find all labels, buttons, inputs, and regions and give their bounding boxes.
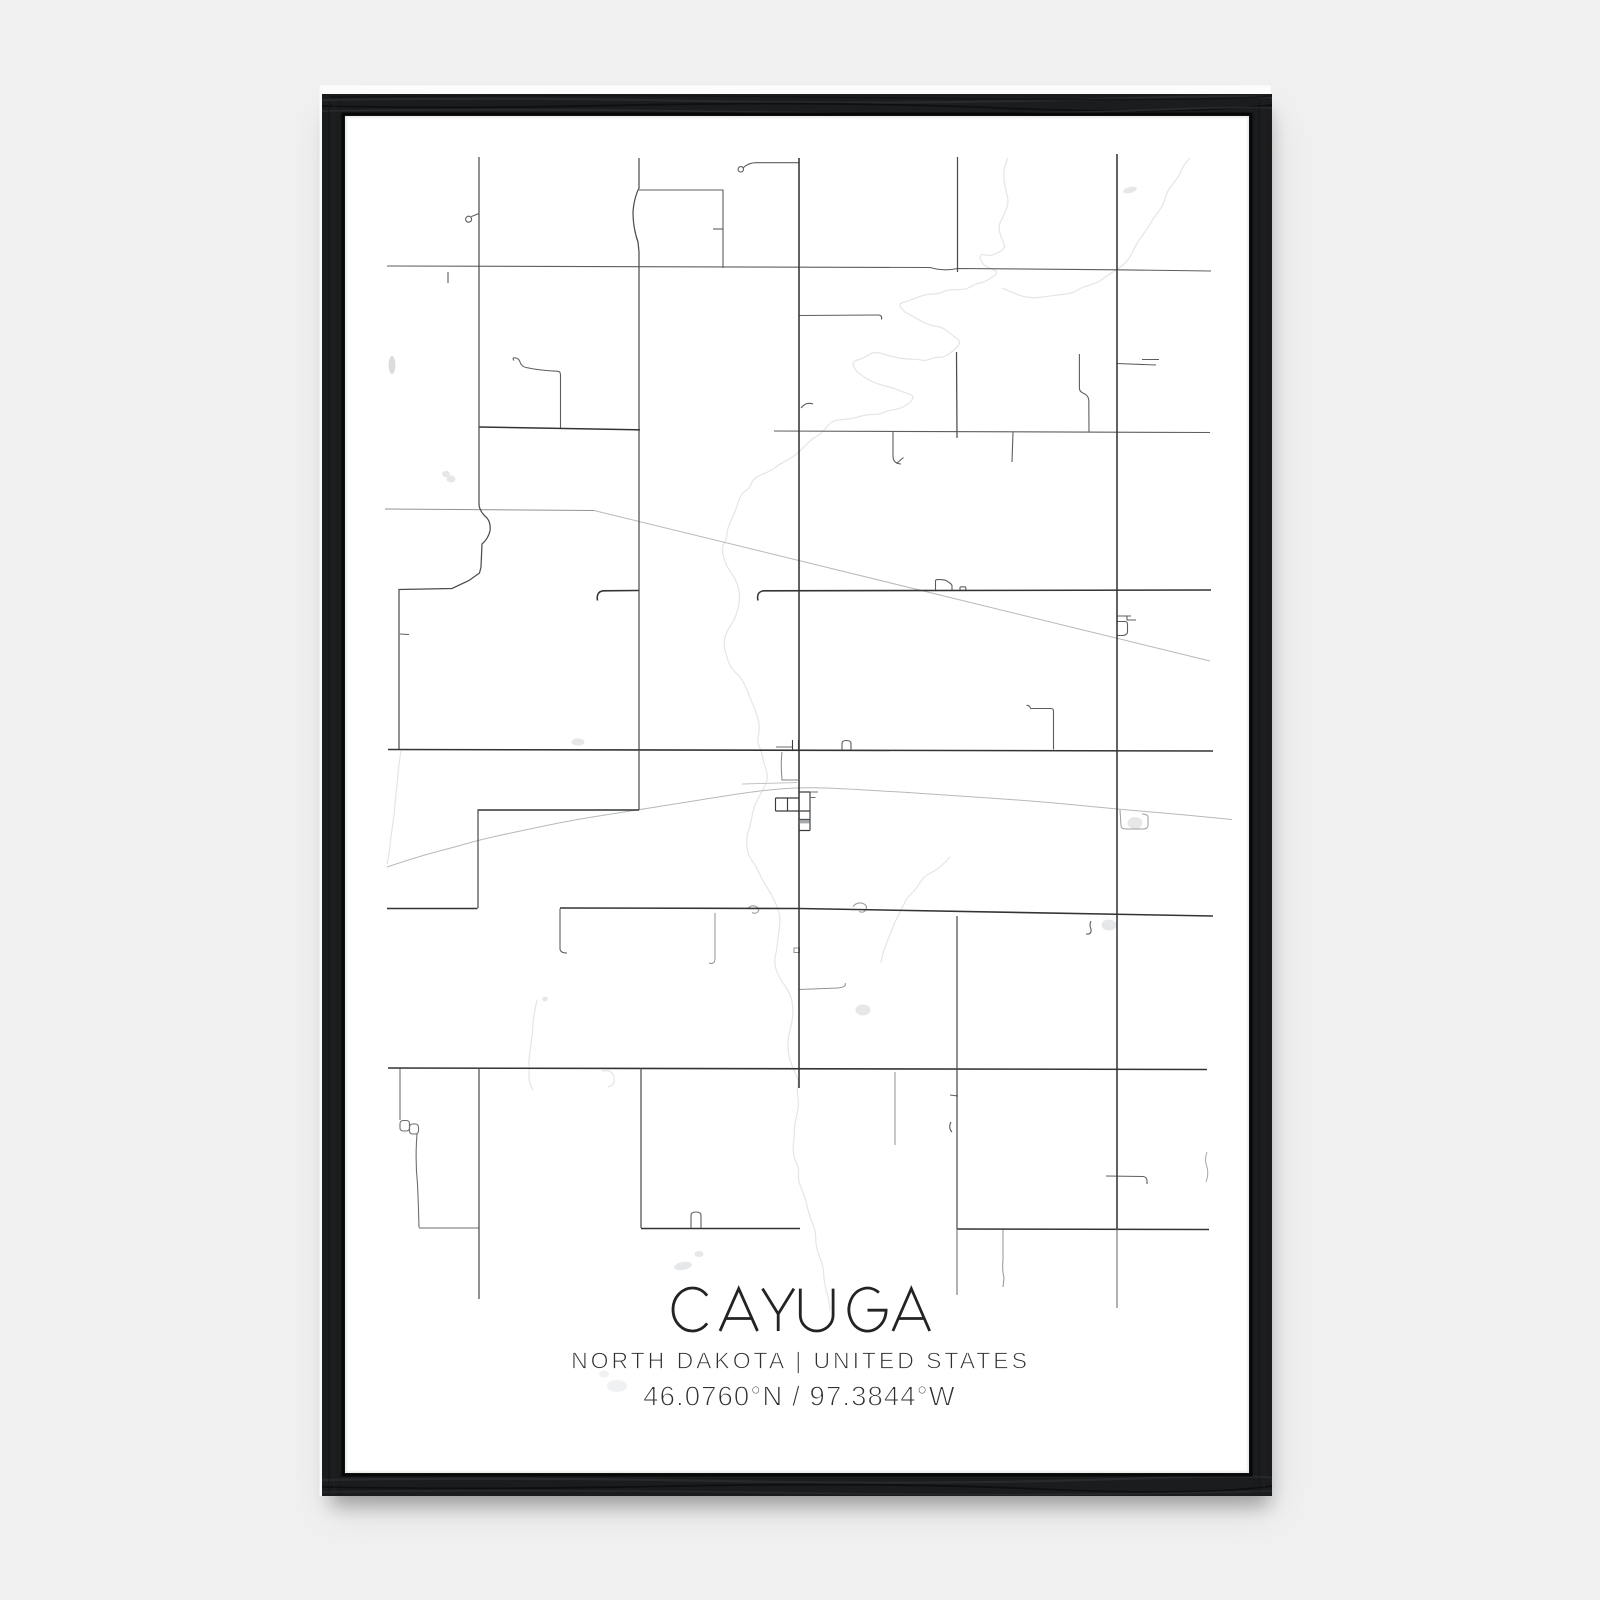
- svg-text:46.0760°N / 97.3844°W: 46.0760°N / 97.3844°W: [643, 1381, 956, 1412]
- svg-text:NORTH DAKOTA | UNITED STATES: NORTH DAKOTA | UNITED STATES: [571, 1348, 1030, 1374]
